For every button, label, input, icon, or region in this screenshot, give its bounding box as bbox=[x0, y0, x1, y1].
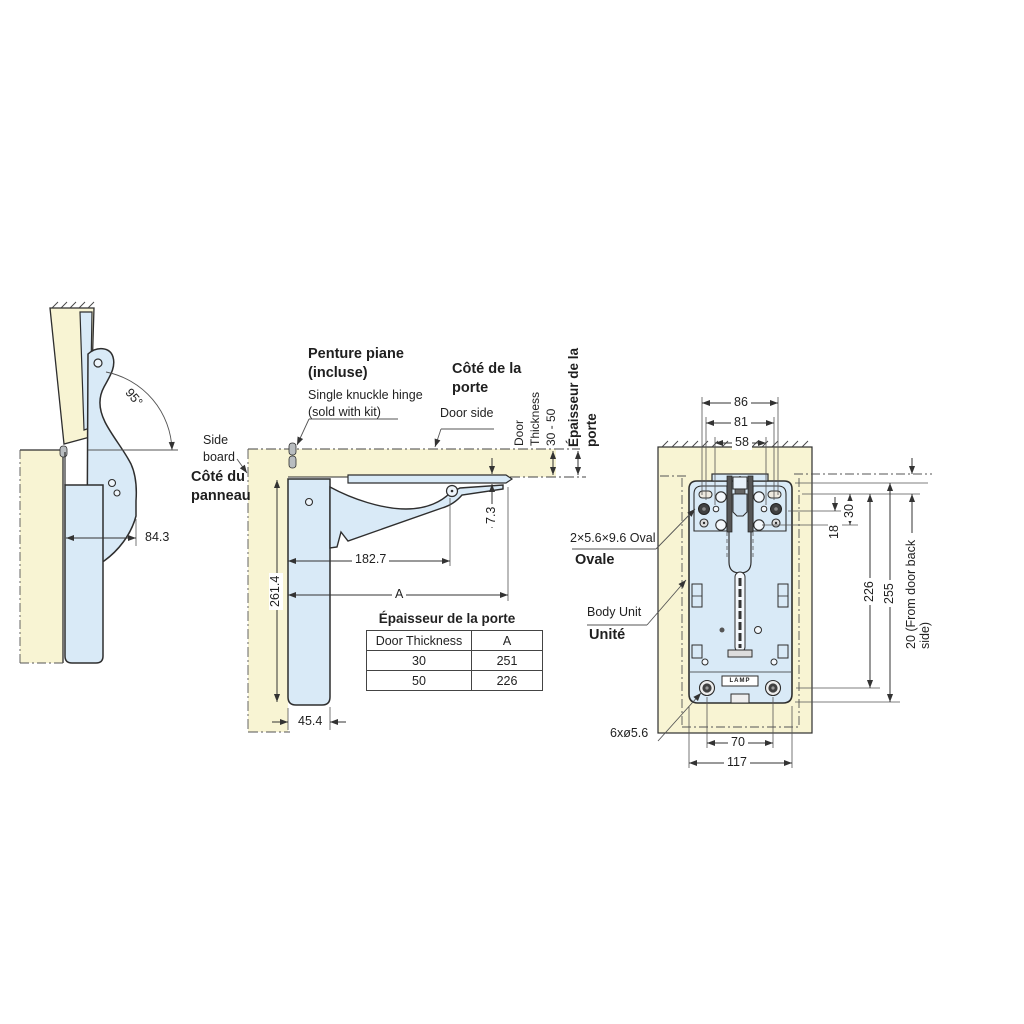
technical-drawing-page: 95° 84.3 Penture piane (incluse) Single … bbox=[0, 0, 1024, 1024]
door-thickness-rotated-label: Door Thickness 30 - 50 bbox=[512, 392, 559, 446]
dim-117-label: 117 bbox=[724, 756, 750, 770]
oval-holes-label: 2×5.6×9.6 Oval bbox=[570, 530, 655, 547]
cote-de-la-porte-label: Côté de la porte bbox=[452, 360, 521, 398]
door-thickness-table-title: Épaisseur de la porte bbox=[366, 611, 528, 626]
table-cell-thickness-50: 50 bbox=[367, 671, 472, 691]
lamp-logo: LAMP bbox=[723, 677, 757, 686]
ovale-label: Ovale bbox=[575, 551, 615, 570]
dim-255-label: 255 bbox=[883, 580, 897, 607]
dim-45-4-label: 45.4 bbox=[295, 715, 325, 729]
single-knuckle-hinge-label: Single knuckle hinge (sold with kit) bbox=[308, 387, 423, 420]
right-view-drawing bbox=[572, 397, 932, 768]
table-header-a: A bbox=[472, 631, 543, 651]
dim-226-label: 226 bbox=[863, 578, 877, 605]
body-unit-label: Body Unit bbox=[587, 604, 641, 621]
dim-20-from-door-back-side-label: 20 (From door back side) bbox=[905, 533, 933, 652]
door-side-label: Door side bbox=[440, 405, 494, 422]
cote-du-panneau-label: Côté du panneau bbox=[191, 468, 251, 506]
table-cell-a-226: 226 bbox=[472, 671, 543, 691]
dim-81-label: 81 bbox=[731, 416, 751, 430]
dim-30-label: 30 bbox=[843, 501, 857, 521]
dim-84-3-label: 84.3 bbox=[142, 531, 172, 545]
dim-7-3-label: 7.3 bbox=[485, 504, 499, 527]
dim-182-7-label: 182.7 bbox=[352, 553, 389, 567]
drawing-linework bbox=[0, 0, 1024, 1024]
table-header-door-thickness: Door Thickness bbox=[367, 631, 472, 651]
dim-261-4-label: 261.4 bbox=[269, 573, 283, 610]
table-cell-thickness-30: 30 bbox=[367, 651, 472, 671]
door-thickness-table: Door Thickness A 30 251 50 226 bbox=[366, 630, 543, 691]
side-board-label: Side board bbox=[203, 432, 235, 465]
penture-label: Penture piane (incluse) bbox=[308, 345, 404, 383]
dim-58-label: 58 bbox=[732, 436, 752, 450]
dim-70-label: 70 bbox=[728, 736, 748, 750]
table-row: 30 251 bbox=[367, 651, 543, 671]
table-row: 50 226 bbox=[367, 671, 543, 691]
left-view-drawing bbox=[20, 302, 178, 663]
table-header-row: Door Thickness A bbox=[367, 631, 543, 651]
holes-6x5-6-label: 6xø5.6 bbox=[610, 725, 648, 742]
epaisseur-porte-rotated-label: Épaisseur de la porte bbox=[565, 348, 601, 447]
dim-86-label: 86 bbox=[731, 396, 751, 410]
table-cell-a-251: 251 bbox=[472, 651, 543, 671]
dim-18-label: 18 bbox=[828, 522, 842, 542]
unite-label: Unité bbox=[589, 626, 625, 645]
dim-a-label: A bbox=[392, 588, 406, 602]
